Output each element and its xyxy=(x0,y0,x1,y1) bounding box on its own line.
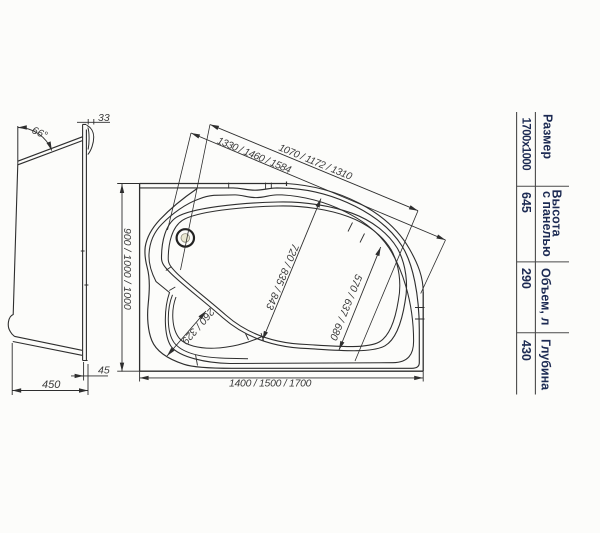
svg-text:Объем, л: Объем, л xyxy=(539,268,553,325)
svg-text:Размер: Размер xyxy=(541,114,555,159)
svg-text:45: 45 xyxy=(98,365,110,377)
svg-text:290: 290 xyxy=(519,268,533,289)
svg-text:645: 645 xyxy=(519,192,533,213)
svg-text:430: 430 xyxy=(519,340,533,361)
svg-text:1400 / 1500 / 1700: 1400 / 1500 / 1700 xyxy=(229,379,312,390)
svg-text:33: 33 xyxy=(98,112,110,124)
svg-text:с панелью: с панелью xyxy=(540,191,554,257)
svg-text:Глубина: Глубина xyxy=(539,339,553,391)
svg-text:1700x1000: 1700x1000 xyxy=(519,118,531,171)
svg-text:450: 450 xyxy=(42,379,61,391)
svg-text:900 / 1000 / 1000: 900 / 1000 / 1000 xyxy=(121,228,133,310)
